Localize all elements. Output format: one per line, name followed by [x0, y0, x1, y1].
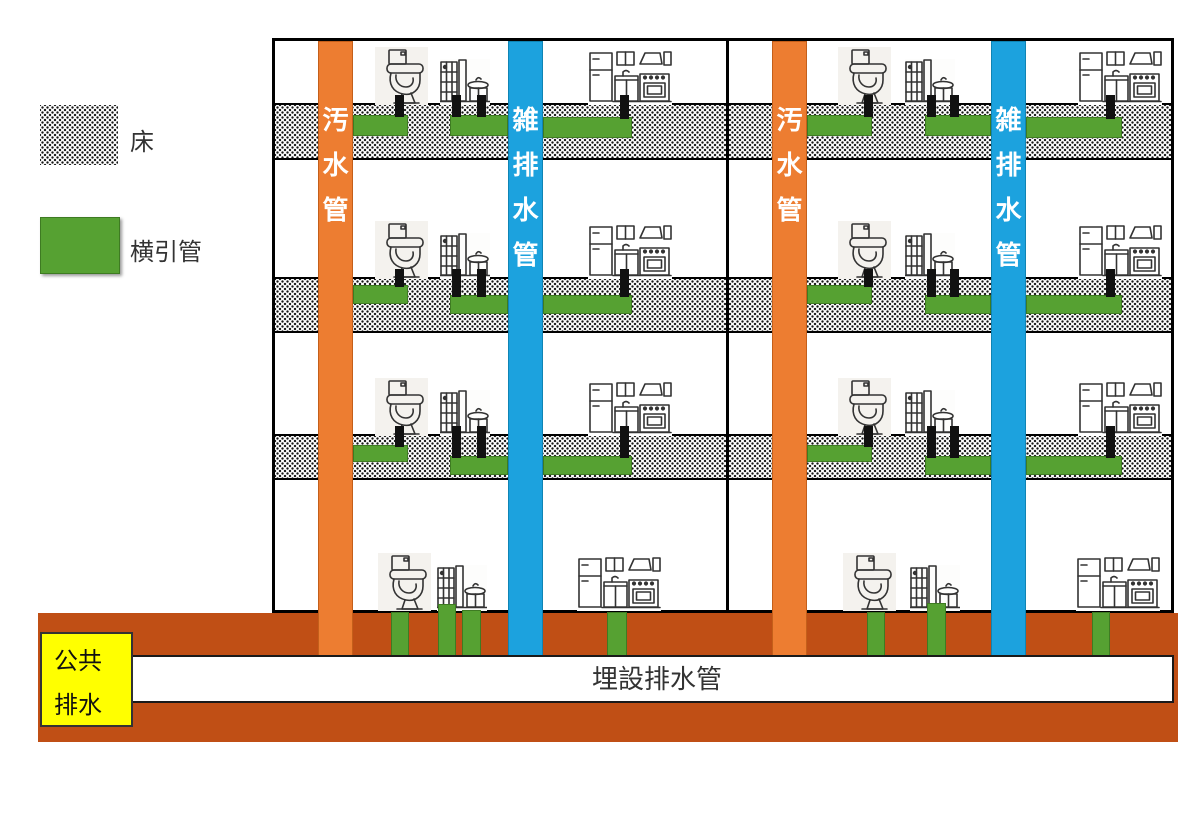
lateral-pipe [807, 285, 872, 304]
drain-connector [452, 269, 461, 297]
lateral-pipe [450, 456, 508, 475]
drain-connector [620, 269, 629, 297]
legend-floor-label: 床 [130, 122, 154, 157]
drain-connector [452, 426, 461, 458]
public-sewer-label-line1: 公共 [54, 640, 131, 684]
toilet-icon [378, 553, 431, 611]
buried-drain-pipe-label: 埋設排水管 [42, 657, 1172, 701]
kitchen-icon [577, 555, 661, 611]
drain-connector [477, 95, 486, 117]
legend-lateral-pipe-swatch [40, 217, 120, 274]
kitchen-icon [1078, 380, 1162, 436]
lateral-pipe [807, 115, 872, 136]
waste-stack-label: 雑排水管 [992, 42, 1025, 656]
ground-stub-pipe [391, 612, 409, 657]
ground-stub-pipe [927, 603, 946, 657]
drain-connector [1106, 95, 1115, 119]
drain-connector [864, 95, 873, 117]
ground-stub-pipe [462, 610, 481, 657]
lateral-pipe [543, 456, 632, 475]
soil-stack-label: 汚水管 [773, 42, 806, 656]
drain-connector [950, 269, 959, 297]
drain-connector [950, 426, 959, 458]
lateral-pipe [925, 115, 991, 136]
drain-connector [1106, 269, 1115, 297]
drain-connector [927, 95, 936, 117]
waste-stack-pipe-right: 雑排水管 [991, 41, 1026, 657]
soil-stack-pipe-right: 汚水管 [772, 41, 807, 657]
kitchen-icon [1076, 555, 1160, 611]
drain-connector [620, 426, 629, 458]
lateral-pipe [925, 295, 991, 314]
ground-stub-pipe [867, 612, 885, 657]
waste-stack-label: 雑排水管 [509, 42, 542, 656]
drain-connector [864, 269, 873, 287]
lateral-pipe [1026, 295, 1122, 314]
drain-connector [452, 95, 461, 117]
lateral-pipe [1026, 456, 1122, 475]
drain-connector [927, 426, 936, 458]
lateral-pipe [543, 295, 632, 314]
drain-connector [395, 95, 404, 117]
drain-connector [1106, 426, 1115, 458]
kitchen-icon [588, 223, 672, 279]
lateral-pipe [450, 115, 508, 136]
kitchen-icon [588, 380, 672, 436]
drain-connector [620, 95, 629, 119]
public-sewer-box: 公共 排水 [40, 632, 133, 727]
drain-connector [864, 426, 873, 447]
drain-connector [927, 269, 936, 297]
ground-stub-pipe [607, 612, 627, 657]
soil-stack-pipe-left: 汚水管 [318, 41, 353, 657]
kitchen-icon [588, 49, 672, 105]
toilet-icon [843, 553, 896, 611]
drainage-diagram: 床 横引管 [0, 0, 1201, 825]
drain-connector [477, 426, 486, 458]
lateral-pipe [353, 285, 408, 304]
public-sewer-label-line2: 排水 [54, 684, 131, 728]
lateral-pipe [450, 295, 508, 314]
lateral-pipe [543, 117, 632, 138]
legend-floor-swatch [40, 105, 118, 165]
lateral-pipe [925, 456, 991, 475]
kitchen-icon [1078, 49, 1162, 105]
drain-connector [477, 269, 486, 297]
ground-stub-pipe [438, 604, 456, 657]
kitchen-icon [1078, 223, 1162, 279]
buried-drain-pipe-band: 埋設排水管 [40, 655, 1174, 703]
lateral-pipe [1026, 117, 1122, 138]
lateral-pipe [353, 115, 408, 136]
drain-connector [395, 426, 404, 447]
soil-stack-label: 汚水管 [319, 42, 352, 656]
lateral-pipe [807, 445, 872, 462]
waste-stack-pipe-left: 雑排水管 [508, 41, 543, 657]
drain-connector [950, 95, 959, 117]
lateral-pipe [353, 445, 408, 462]
legend-lateral-pipe-label: 横引管 [130, 232, 202, 267]
drain-connector [395, 269, 404, 287]
unit-divider-wall [726, 41, 729, 610]
ground-stub-pipe [1092, 612, 1110, 657]
